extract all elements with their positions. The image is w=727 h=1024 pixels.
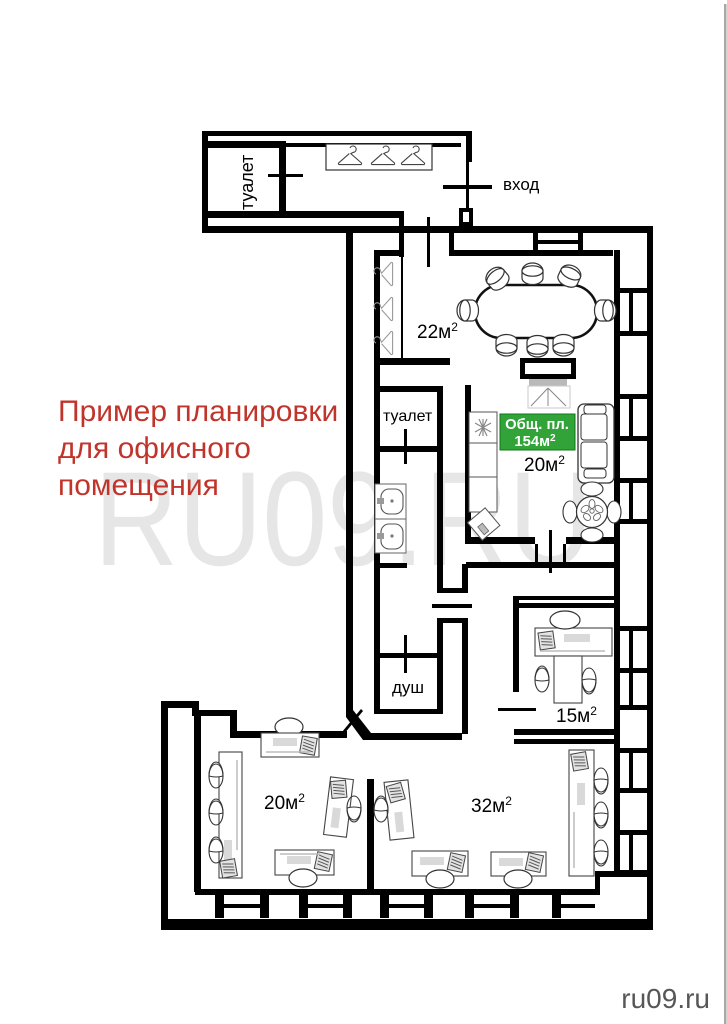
svg-text:вход: вход — [503, 175, 539, 194]
svg-text:Пример планировки: Пример планировки — [58, 395, 338, 428]
svg-text:Общ. пл.: Общ. пл. — [505, 417, 569, 433]
svg-text:154м2: 154м2 — [514, 433, 556, 450]
svg-text:помещения: помещения — [58, 469, 219, 502]
svg-text:32м2: 32м2 — [471, 794, 512, 817]
svg-text:20м2: 20м2 — [264, 791, 305, 814]
svg-text:туалет: туалет — [383, 408, 433, 425]
svg-text:туалет: туалет — [237, 155, 257, 210]
svg-text:ru09.ru: ru09.ru — [621, 983, 710, 1014]
svg-text:22м2: 22м2 — [417, 320, 458, 343]
svg-text:душ: душ — [392, 678, 424, 697]
svg-text:15м2: 15м2 — [556, 704, 597, 727]
svg-text:для офисного: для офисного — [58, 432, 251, 465]
svg-text:RU09.RU: RU09.RU — [94, 443, 593, 593]
